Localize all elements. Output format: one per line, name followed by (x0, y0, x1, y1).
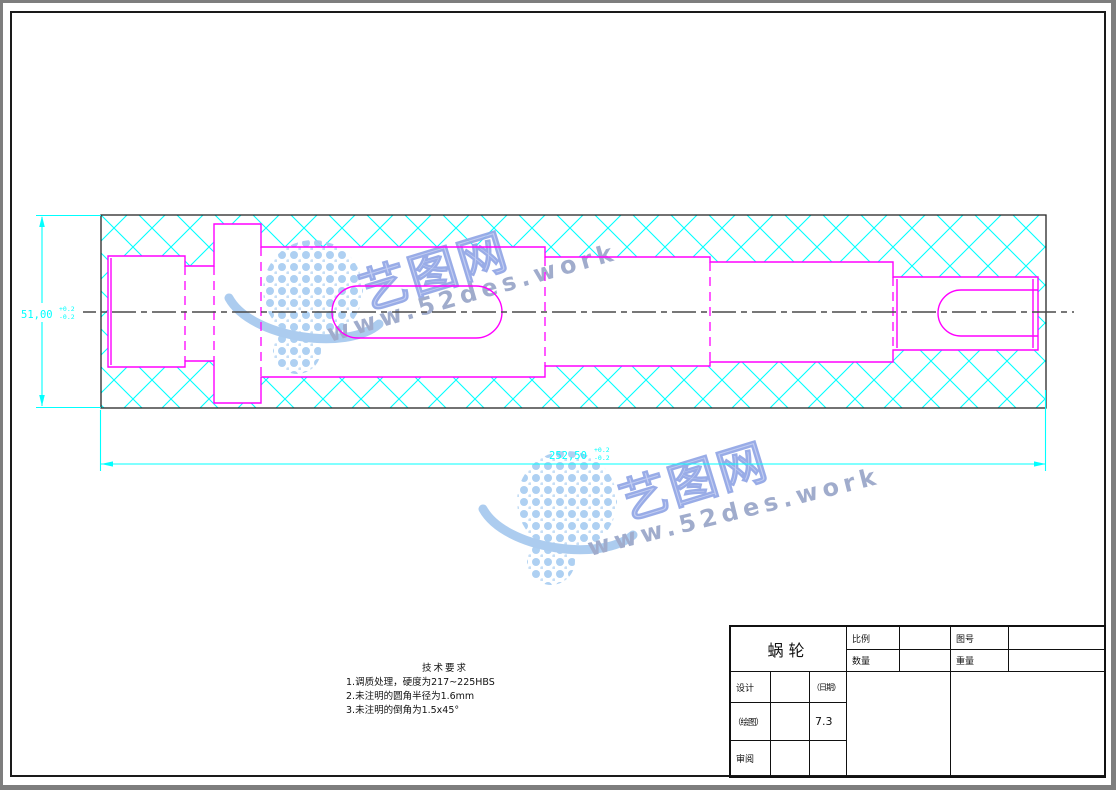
tech-req-title: 技术要求 (340, 662, 550, 676)
titleblock-draft-label: （绘图） (731, 703, 771, 741)
titleblock-empty-right (951, 672, 1104, 776)
titleblock-drawing-no-label: 图号 (951, 627, 1009, 650)
titleblock-date-label: （日期） (810, 672, 847, 703)
dim-width-tol-lower: -0.2 (59, 313, 75, 321)
titleblock-empty-mid (847, 672, 951, 776)
titleblock-part-name: 蜗轮 (731, 627, 847, 672)
tech-req-item: 3.未注明的倒角为1.5x45° (340, 704, 550, 718)
watermark-lower: 艺图网 www.52des.work (483, 433, 883, 585)
dim-length-tol-upper: +0.2 (594, 446, 610, 454)
titleblock-scale-value (900, 627, 951, 650)
dimension-width: 51,00 +0.2 -0.2 (19, 303, 83, 322)
titleblock-review-extra (810, 741, 847, 776)
dim-width-value: 51,00 (21, 309, 53, 321)
technical-requirements: 技术要求 1.调质处理，硬度为217~225HBS 2.未注明的圆角半径为1.6… (340, 662, 550, 718)
titleblock-review-label: 审阅 (731, 741, 771, 776)
titleblock-design-label: 设计 (731, 672, 771, 703)
titleblock-draft-date: 7.3 (810, 703, 847, 741)
dim-width-tol-upper: +0.2 (59, 305, 75, 313)
dim-length-value: 252,50 (549, 450, 587, 462)
titleblock-weight-label: 重量 (951, 650, 1009, 672)
tech-req-item: 2.未注明的圆角半径为1.6mm (340, 690, 550, 704)
tech-req-item: 1.调质处理，硬度为217~225HBS (340, 676, 550, 690)
titleblock-design-value (771, 672, 810, 703)
titleblock-draft-value (771, 703, 810, 741)
titleblock-drawing-no-value (1009, 627, 1104, 650)
title-block: 蜗轮 比例 图号 数量 重量 设计 （日期） （绘图） 7.3 审阅 (729, 625, 1106, 778)
drawing-sheet: 艺图网 www.52des.work (0, 0, 1116, 790)
titleblock-review-value (771, 741, 810, 776)
titleblock-weight-value (1009, 650, 1104, 672)
titleblock-scale-label: 比例 (847, 627, 900, 650)
titleblock-quantity-label: 数量 (847, 650, 900, 672)
dimension-length: 252,50 +0.2 -0.2 (549, 446, 610, 462)
titleblock-quantity-value (900, 650, 951, 672)
dim-length-tol-lower: -0.2 (594, 454, 610, 462)
